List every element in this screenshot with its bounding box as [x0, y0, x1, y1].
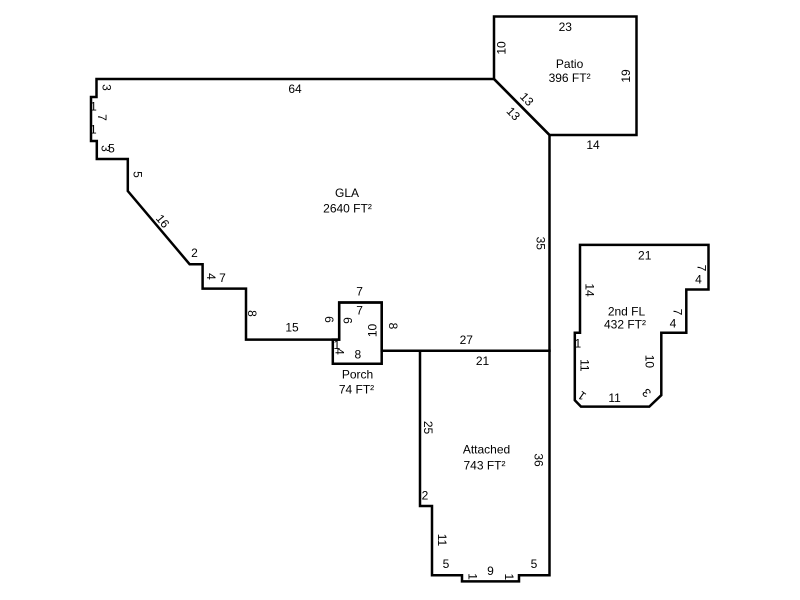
svg-text:16: 16	[153, 212, 173, 231]
svg-text:8: 8	[354, 347, 361, 361]
svg-text:8: 8	[386, 323, 400, 330]
svg-text:14: 14	[586, 138, 600, 152]
svg-text:25: 25	[421, 421, 435, 435]
svg-text:5: 5	[108, 141, 115, 155]
svg-text:5: 5	[443, 557, 450, 571]
svg-text:7: 7	[95, 114, 109, 121]
svg-text:19: 19	[619, 69, 633, 83]
svg-text:21: 21	[638, 248, 652, 262]
svg-text:7: 7	[356, 304, 363, 318]
svg-text:1: 1	[90, 122, 97, 136]
svg-text:23: 23	[559, 20, 573, 34]
svg-text:5: 5	[131, 171, 145, 178]
svg-text:Porch: Porch	[342, 368, 373, 382]
svg-text:9: 9	[487, 564, 494, 578]
svg-text:4: 4	[204, 273, 218, 280]
svg-text:4: 4	[695, 272, 702, 286]
svg-text:11: 11	[578, 359, 592, 372]
svg-text:36: 36	[532, 453, 546, 467]
svg-text:1: 1	[466, 573, 480, 580]
svg-text:7: 7	[356, 285, 363, 299]
svg-text:Patio: Patio	[556, 57, 584, 71]
svg-text:10: 10	[494, 41, 508, 55]
svg-text:74 FT²: 74 FT²	[339, 382, 374, 396]
svg-text:4: 4	[333, 348, 347, 355]
svg-text:21: 21	[476, 354, 490, 368]
svg-text:64: 64	[288, 82, 302, 96]
svg-text:6: 6	[340, 317, 354, 324]
svg-text:1: 1	[90, 99, 97, 113]
svg-text:7: 7	[671, 309, 685, 316]
svg-text:1: 1	[575, 337, 582, 351]
svg-text:3: 3	[100, 84, 114, 91]
svg-text:1: 1	[502, 573, 516, 580]
svg-text:10: 10	[643, 355, 657, 369]
svg-text:8: 8	[245, 310, 259, 317]
svg-text:6: 6	[322, 316, 336, 323]
svg-text:35: 35	[534, 237, 548, 251]
svg-text:14: 14	[582, 283, 596, 297]
svg-text:4: 4	[670, 317, 677, 331]
svg-text:11: 11	[435, 534, 449, 547]
svg-text:GLA: GLA	[335, 186, 359, 200]
svg-text:1: 1	[575, 388, 589, 403]
svg-text:7: 7	[219, 271, 226, 285]
svg-text:396 FT²: 396 FT²	[549, 71, 591, 85]
svg-text:7: 7	[695, 265, 709, 272]
svg-text:10: 10	[366, 324, 380, 338]
svg-text:Attached: Attached	[463, 442, 510, 456]
svg-text:11: 11	[608, 391, 621, 405]
svg-text:2: 2	[191, 246, 198, 260]
svg-text:27: 27	[460, 333, 474, 347]
svg-text:2640 FT²: 2640 FT²	[323, 202, 372, 216]
svg-text:432 FT²: 432 FT²	[604, 318, 646, 332]
svg-text:5: 5	[531, 557, 538, 571]
svg-text:2nd FL: 2nd FL	[608, 305, 646, 319]
svg-text:743 FT²: 743 FT²	[463, 458, 505, 472]
svg-text:2: 2	[422, 488, 429, 502]
svg-text:3: 3	[639, 385, 654, 400]
svg-text:15: 15	[285, 320, 299, 334]
